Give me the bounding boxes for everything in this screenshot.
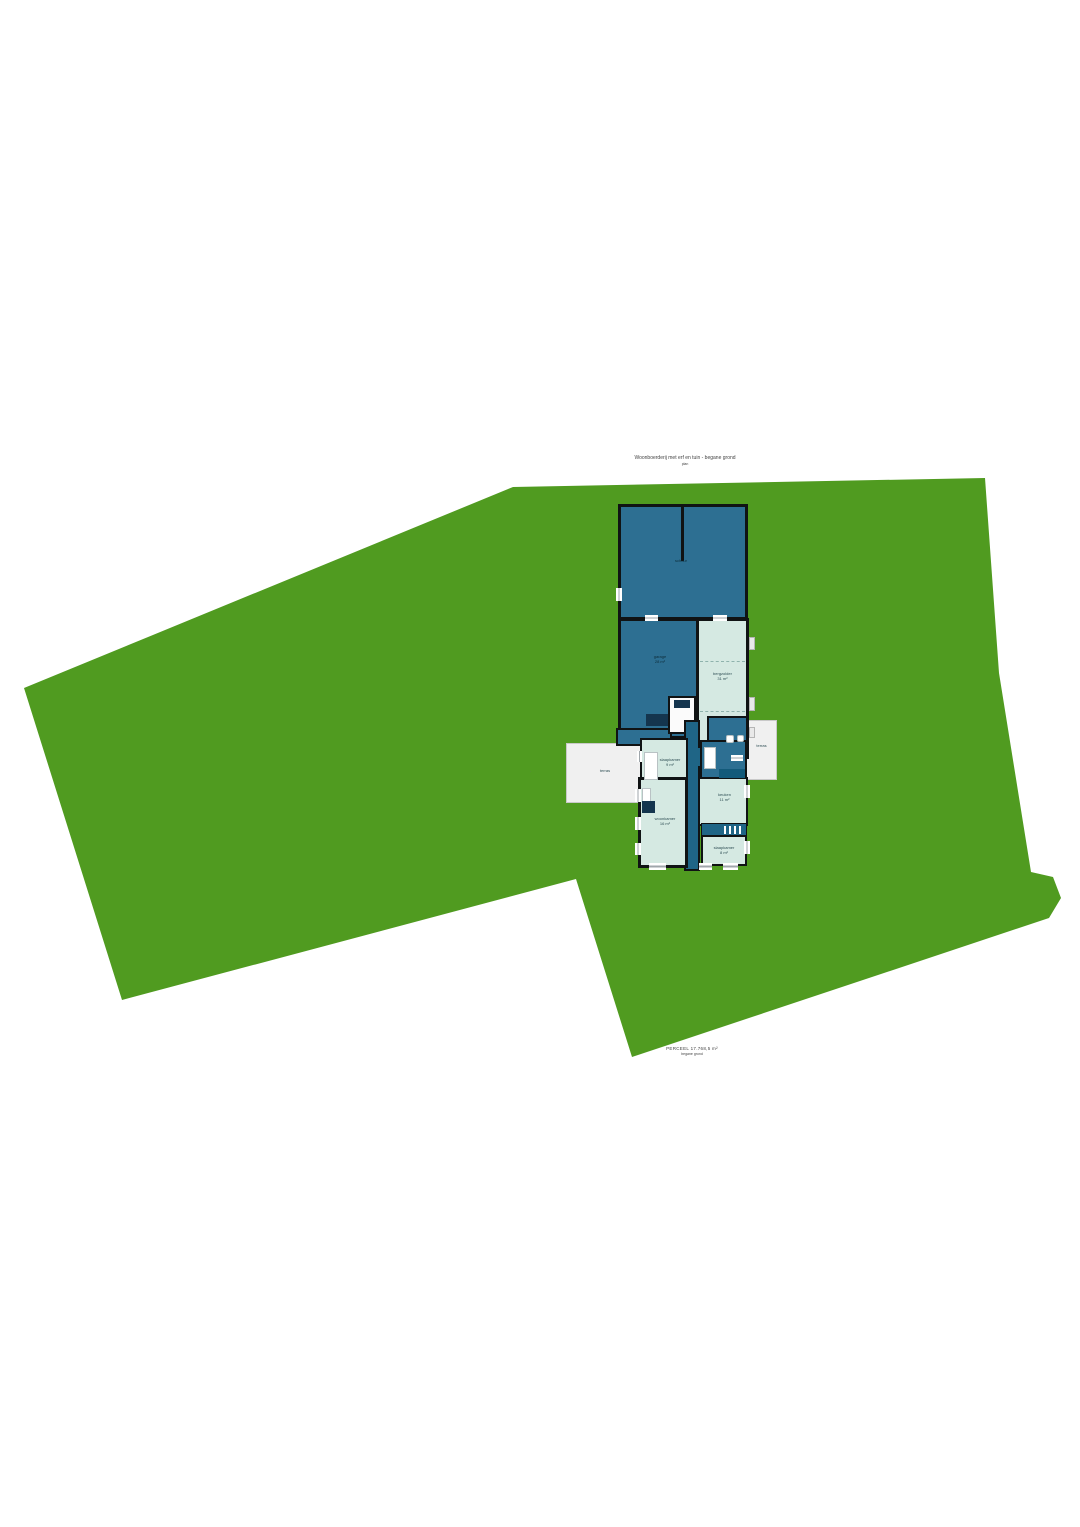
terrace-left: [566, 743, 644, 803]
plan-footer-line2: begane grond: [592, 1052, 792, 1056]
door-opening: [731, 755, 743, 761]
attic-dashed-line: [700, 661, 745, 662]
measure-dot: ·: [689, 872, 690, 877]
window-tab: [749, 697, 755, 711]
workbench-furniture: [646, 714, 668, 726]
window: [723, 863, 738, 870]
bed-furniture: [704, 747, 716, 769]
stove-furniture: [642, 801, 655, 813]
plan-title-line2: plan: [585, 462, 785, 466]
window: [635, 789, 641, 802]
door-opening: [645, 615, 658, 621]
window: [699, 863, 712, 870]
land-parcel-svg: [0, 0, 1080, 1527]
stairs-steps: [724, 826, 744, 834]
shower-fixture: [674, 700, 690, 708]
site-plan-canvas: Woonboerderij met erf en tuin - begane g…: [0, 0, 1080, 1527]
window: [635, 843, 641, 855]
room-bed3: [701, 835, 747, 866]
door-opening: [713, 615, 727, 621]
window-tab: [749, 727, 755, 738]
plan-title: Woonboerderij met erf en tuin - begane g…: [585, 455, 785, 466]
door-opening: [637, 751, 642, 762]
window: [649, 863, 666, 870]
sofa-furniture: [719, 769, 745, 778]
sink-fixture: [737, 735, 744, 742]
toilet-fixture: [726, 735, 734, 743]
window: [744, 785, 750, 798]
land-parcel-polygon: [24, 478, 1061, 1057]
measure-dot: ·: [530, 769, 531, 774]
window: [744, 841, 750, 854]
bed-furniture: [644, 752, 658, 780]
window: [616, 588, 622, 601]
barn-divider-wall: [681, 506, 684, 561]
plan-footer: PERCEEL 17.768,5 m² begane grond: [592, 1046, 792, 1056]
window-tab: [749, 637, 755, 650]
window: [635, 817, 641, 830]
room-kitchen: [698, 777, 748, 826]
attic-dashed-line: [700, 711, 745, 712]
